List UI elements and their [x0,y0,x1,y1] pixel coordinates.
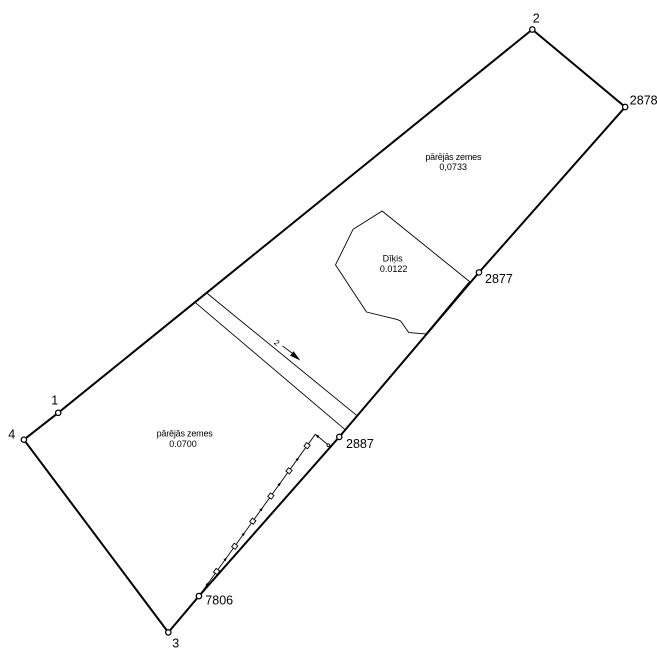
svg-text:Dīķis: Dīķis [383,254,403,264]
svg-text:3: 3 [172,637,179,651]
svg-text:2878: 2878 [630,94,657,108]
svg-text:7806: 7806 [205,594,233,608]
svg-text:4: 4 [8,428,15,442]
svg-text:2887: 2887 [346,437,374,451]
svg-text:2: 2 [533,12,540,26]
svg-text:0.0700: 0.0700 [169,439,197,449]
svg-text:2877: 2877 [485,272,513,286]
svg-text:pārējās zemes: pārējās zemes [425,152,482,162]
svg-text:0.0122: 0.0122 [380,264,408,274]
svg-text:1: 1 [51,394,58,408]
svg-text:pārējās zemes: pārējās zemes [157,429,214,439]
svg-text:0,0733: 0,0733 [439,162,467,172]
